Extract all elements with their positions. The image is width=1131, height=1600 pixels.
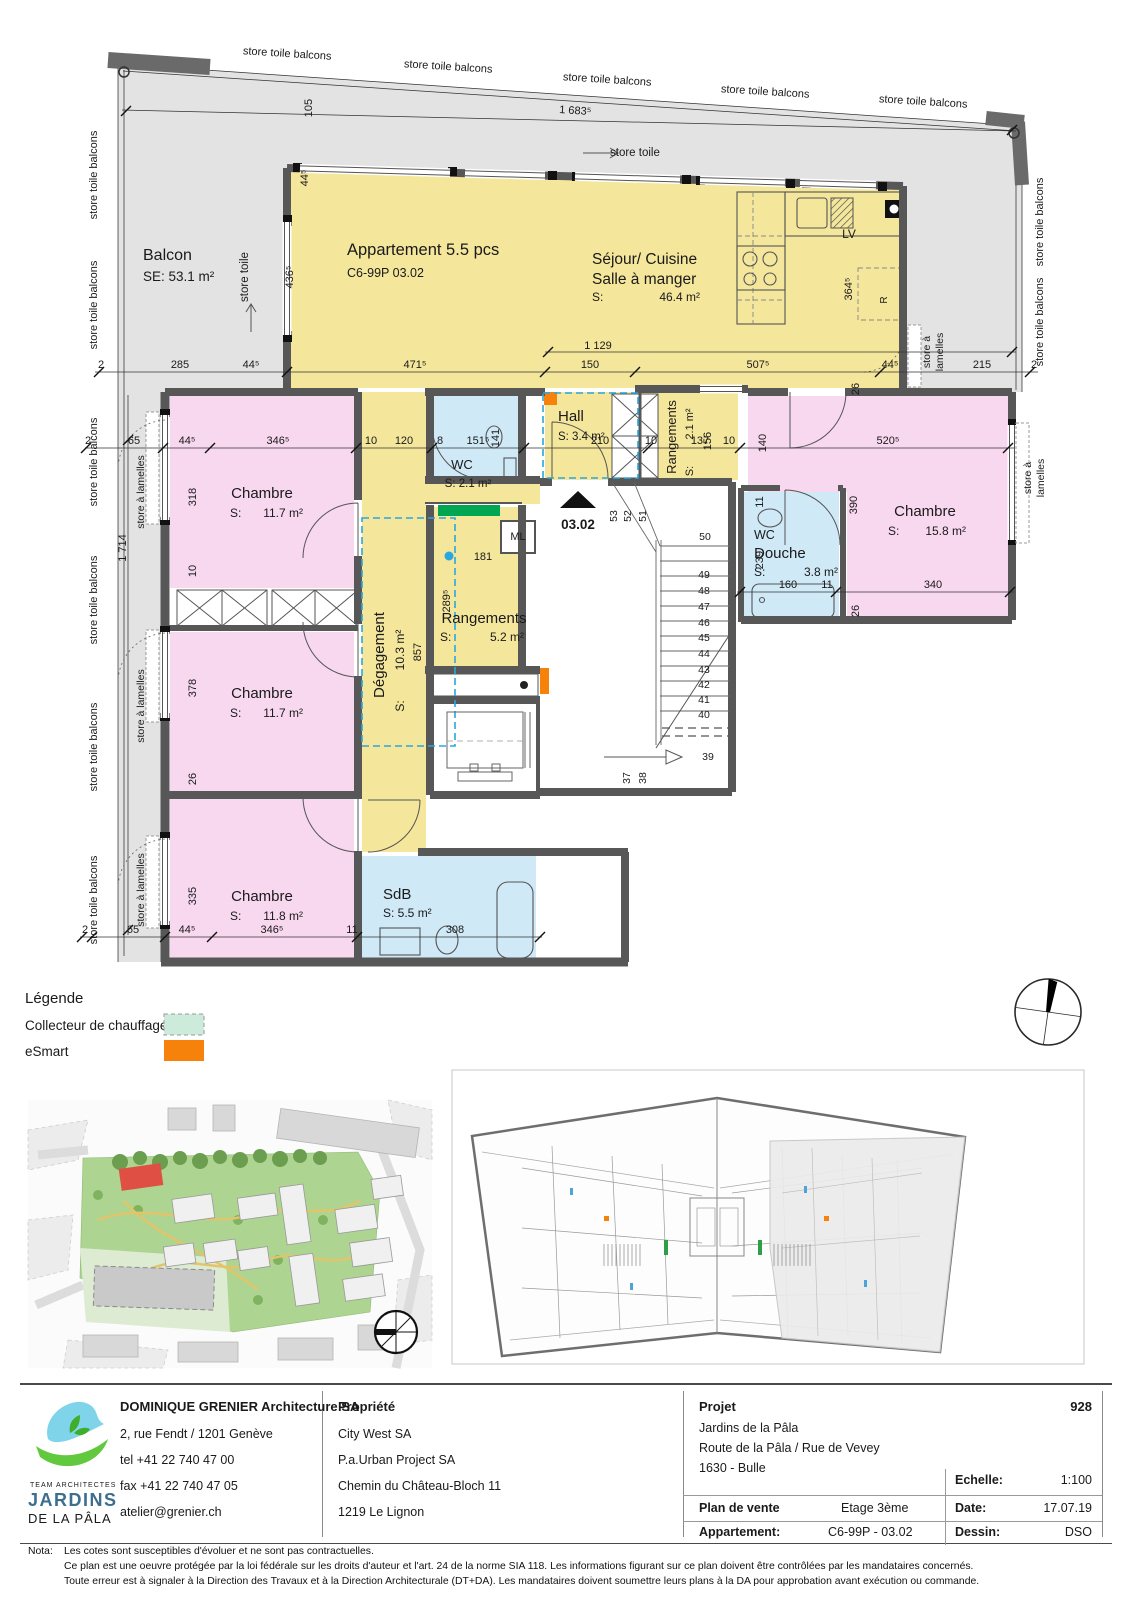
drawing-label: Dessin: (955, 1525, 1000, 1539)
plan-annotation: 308 (446, 924, 464, 936)
project-line: Jardins de la Pâla (699, 1421, 798, 1435)
plan-annotation: 26 (850, 383, 862, 395)
plan-annotation: 47 (698, 601, 710, 613)
plan-annotation: Dégagement (371, 611, 388, 698)
plan-annotation: 436⁵ (284, 266, 296, 289)
plan-annotation: lamelles (1035, 459, 1047, 498)
plan-annotation: 51 (637, 510, 649, 522)
plan-annotation: 857 (412, 643, 424, 661)
plan-annotation: 120 (395, 435, 413, 447)
legend-title: Légende (25, 990, 83, 1007)
architect-email[interactable]: atelier@grenier.ch (120, 1505, 222, 1519)
plan-annotation: store toile balcons (404, 58, 494, 76)
plan-annotation: 53 (608, 510, 620, 522)
plan-annotation: Chambre (231, 485, 293, 502)
plan-annotation: 15.8 m² (925, 524, 966, 538)
plan-annotation: 181 (474, 551, 492, 563)
plan-annotation: R (879, 296, 890, 303)
plan-annotation: 39 (702, 751, 714, 763)
plan-annotation: store toile balcons (88, 417, 100, 506)
plan-annotation: 1 683⁵ (559, 104, 592, 118)
plan-annotation: S: (684, 466, 696, 476)
plan-annotation: 44⁵ (299, 170, 311, 187)
owner-title: Propriété (338, 1399, 395, 1414)
plan-annotation: 10 (365, 435, 377, 447)
plan-annotation: store toile balcons (88, 260, 100, 349)
site-plan (28, 1100, 432, 1368)
plan-annotation: store à lamelles (135, 669, 147, 743)
divider (683, 1521, 1102, 1522)
architect-info: DOMINIQUE GRENIER Architecture SA 2, rue… (120, 1391, 320, 1537)
plan-annotation: 10.3 m² (393, 630, 407, 671)
key-plan (452, 1070, 1084, 1364)
apartment-label: Appartement: (699, 1525, 780, 1539)
plan-annotation: store toile (610, 147, 660, 159)
plan-annotation: 44⁵ (179, 435, 196, 447)
project-title: Projet (699, 1399, 736, 1414)
owner-line: P.a.Urban Project SA (338, 1453, 455, 1467)
plan-annotation: 26 (187, 773, 199, 785)
plan-annotation: 2 (98, 359, 104, 371)
architect-name: DOMINIQUE GRENIER Architecture SA (120, 1399, 359, 1414)
plan-annotation: LV (842, 227, 856, 241)
plan-annotation: 210 (591, 435, 609, 447)
plan-annotation: 11 (821, 579, 832, 591)
plan-annotation: store toile balcons (243, 45, 333, 63)
project-number: 928 (1070, 1399, 1092, 1414)
plan-annotation: 45 (698, 632, 710, 644)
plan-annotation: 43 (698, 664, 710, 676)
divider (945, 1469, 946, 1545)
plan-annotation: 10 (187, 565, 199, 577)
plan-annotation: 335 (187, 887, 199, 905)
logo-jardins: JARDINS (28, 1490, 118, 1510)
plan-annotation: WC (451, 457, 473, 472)
plan-annotation: 156 (702, 432, 714, 450)
plan-annotation: 44⁵ (882, 359, 899, 371)
date-label: Date: (955, 1501, 986, 1515)
plan-annotation: 1 129 (584, 340, 612, 352)
plan-annotation: 50 (699, 531, 711, 543)
nota-line: Toute erreur est à signaler à la Directi… (64, 1574, 979, 1589)
plan-annotation: store toile balcons (88, 555, 100, 644)
scale-value: 1:100 (1061, 1473, 1092, 1487)
floor-value: Etage 3ème (841, 1501, 908, 1515)
plan-annotation: 52 (622, 510, 634, 522)
plan-annotation: 11.7 m² (263, 506, 303, 520)
plan-annotation: 1 714 (117, 534, 129, 562)
plan-annotation: S: 5.5 m² (383, 906, 432, 920)
plan-annotation: store toile balcons (563, 71, 653, 89)
plan-annotation: 2 (1031, 359, 1037, 371)
plan-annotation: 346⁵ (261, 924, 284, 936)
plan-annotation: S: (230, 506, 241, 520)
plan-annotation: 11.7 m² (263, 706, 303, 720)
plan-annotation: store toile balcons (88, 855, 100, 944)
plan-annotation: Chambre (894, 503, 956, 520)
plan-annotation: 160 (779, 579, 797, 591)
plan-annotation: 8 (437, 435, 443, 447)
plan-annotation: 44⁵ (243, 359, 260, 371)
plan-annotation: 49 (698, 569, 710, 581)
plan-annotation: 346⁵ (267, 435, 290, 447)
nota: Nota: Les cotes sont susceptibles d'évol… (28, 1544, 979, 1589)
plan-annotation: store toile balcons (88, 130, 100, 219)
plan-annotation: 3.8 m² (804, 565, 838, 579)
project-info: Projet 928 Jardins de la Pâla Route de l… (683, 1391, 1102, 1537)
plan-annotation: 40 (698, 709, 710, 721)
plan-annotation: 2 (82, 924, 88, 936)
plan-annotation: SdB (383, 886, 411, 903)
plan-annotation: S: (440, 630, 451, 644)
logo-team: TEAM ARCHITECTES (30, 1482, 116, 1489)
plan-annotation: store toile balcons (1034, 277, 1046, 366)
owner-line: Chemin du Château-Bloch 11 (338, 1479, 501, 1493)
plan-annotation: store toile balcons (879, 93, 969, 111)
plan-annotation: 239 (754, 551, 766, 569)
plan-annotation: 37 (621, 772, 633, 784)
plan-sheet: BalconSE: 53.1 m²Appartement 5.5 pcsC6-9… (0, 0, 1131, 1600)
title-block: TEAM ARCHITECTES JARDINS DE LA PÂLA DOMI… (20, 1383, 1112, 1544)
plan-annotation: store toile balcons (1034, 177, 1046, 266)
plan-annotation: Rangements (441, 610, 526, 627)
plan-annotation: store toile balcons (88, 702, 100, 791)
key-plan-faded-wing (770, 1137, 965, 1352)
plan-annotation: store toile (239, 252, 251, 302)
plan-annotation: 151⁵ (467, 435, 490, 447)
plan-annotation: S: (230, 909, 241, 923)
plan-annotation: 11.8 m² (263, 909, 303, 923)
nota-label: Nota: (28, 1544, 53, 1559)
plan-annotation: S: (230, 706, 241, 720)
plan-annotation: 215 (973, 359, 991, 371)
architect-fax: fax +41 22 740 47 05 (120, 1479, 238, 1493)
plan-annotation: Appartement 5.5 pcs (347, 241, 499, 259)
owner-line: 1219 Le Lignon (338, 1505, 424, 1519)
plan-annotation: C6-99P 03.02 (347, 266, 424, 280)
plan-annotation: Hall (558, 408, 584, 425)
plan-type-label: Plan de vente (699, 1501, 780, 1515)
plan-annotation: 65 (128, 435, 140, 447)
logo: TEAM ARCHITECTES JARDINS DE LA PÂLA (28, 1391, 118, 1537)
plan-annotation: Chambre (231, 685, 293, 702)
plan-annotation: Chambre (231, 888, 293, 905)
plan-annotation: 41 (698, 694, 710, 706)
site-compass-icon (375, 1311, 417, 1353)
plan-annotation: Rangements (664, 400, 679, 474)
plan-annotation: 141 (490, 429, 502, 447)
legend-item-label: Collecteur de chauffage (25, 1018, 167, 1033)
plan-annotation: 340 (924, 579, 942, 591)
plan-annotation: Balcon (143, 247, 192, 264)
plan-annotation: 10 (645, 435, 657, 447)
plan-annotation: 48 (698, 585, 710, 597)
divider (1102, 1391, 1103, 1537)
plan-annotation: 44 (698, 648, 710, 660)
plan-annotation: 38 (637, 772, 649, 784)
owner-line: City West SA (338, 1427, 411, 1441)
plan-annotation: S: (888, 524, 899, 538)
architect-tel: tel +41 22 740 47 00 (120, 1453, 234, 1467)
plan-annotation: 10 (723, 435, 735, 447)
plan-annotation: store à (1022, 462, 1034, 494)
drawing-value: DSO (1065, 1525, 1092, 1539)
plan-annotation: 46 (698, 617, 710, 629)
plan-annotation: 471⁵ (404, 359, 427, 371)
plan-annotation: S: (393, 700, 407, 711)
plan-annotation: S: 2.1 m² (445, 478, 492, 490)
plan-annotation: Séjour/ Cuisine (592, 251, 697, 268)
plan-annotation: store à (921, 336, 933, 368)
plan-annotation: lamelles (934, 333, 946, 372)
plan-annotation: 390 (848, 496, 860, 514)
date-value: 17.07.19 (1043, 1501, 1092, 1515)
legend-swatch-collector (164, 1014, 204, 1035)
logo-pala: DE LA PÂLA (28, 1511, 112, 1526)
legend-item-label: eSmart (25, 1044, 69, 1059)
plan-annotation: 105 (303, 99, 315, 117)
plan-annotation: 364⁵ (843, 278, 855, 301)
nota-line: Ce plan est une oeuvre protégée par la l… (64, 1559, 979, 1574)
scale-label: Echelle: (955, 1473, 1003, 1487)
plan-annotation: 140 (757, 434, 769, 452)
plan-annotation: 378 (187, 679, 199, 697)
plan-annotation: ML (510, 531, 525, 543)
project-line: 1630 - Bulle (699, 1461, 766, 1475)
plan-annotation: 285 (171, 359, 189, 371)
nota-line: Les cotes sont susceptibles d'évoluer et… (64, 1544, 979, 1559)
plan-annotation: 2 (85, 435, 91, 447)
plan-annotation: 507⁵ (747, 359, 770, 371)
plan-annotation: 65 (127, 924, 139, 936)
room-chambre-2 (170, 632, 354, 791)
elevator-shaft (434, 704, 536, 791)
apartment-value: C6-99P - 03.02 (828, 1525, 913, 1539)
floor-plan-drawing: BalconSE: 53.1 m²Appartement 5.5 pcsC6-9… (0, 0, 1131, 1375)
plan-annotation: 42 (698, 679, 710, 691)
plan-annotation: 03.02 (561, 517, 595, 532)
plan-annotation: store toile balcons (721, 83, 811, 101)
divider (683, 1495, 1102, 1496)
north-compass-icon (1011, 975, 1086, 1050)
plan-annotation: Salle à manger (592, 271, 696, 288)
project-line: Route de la Pâla / Rue de Vevey (699, 1441, 880, 1455)
esmart-sensor-icon (445, 552, 454, 561)
plan-annotation: store à lamelles (135, 455, 147, 529)
plan-annotation: 5.2 m² (490, 630, 524, 644)
plan-annotation: SE: 53.1 m² (143, 269, 215, 284)
plan-annotation: 11 (754, 496, 766, 507)
architect-address: 2, rue Fendt / 1201 Genève (120, 1427, 273, 1441)
legend: Légende Collecteur de chauffage eSmart (25, 990, 204, 1061)
legend-swatch-esmart (164, 1040, 204, 1061)
plan-annotation: 44⁵ (179, 924, 196, 936)
plan-annotation: 11 (346, 924, 357, 936)
esmart-marker (540, 668, 549, 694)
plan-annotation: WC (754, 528, 775, 542)
plan-annotation: 289⁵ (441, 590, 453, 613)
niche (430, 674, 538, 696)
plan-annotation: 150 (581, 359, 599, 371)
plan-annotation: 318 (187, 488, 199, 506)
plan-annotation: S: (592, 290, 603, 304)
collector-strip (438, 505, 500, 516)
esmart-marker (544, 392, 557, 405)
plan-annotation: 46.4 m² (659, 290, 700, 304)
plan-annotation: 26 (850, 605, 862, 617)
owner-info: Propriété City West SA P.a.Urban Project… (338, 1391, 668, 1537)
plan-annotation: 520⁵ (877, 435, 900, 447)
plan-annotation: store à lamelles (135, 853, 147, 927)
